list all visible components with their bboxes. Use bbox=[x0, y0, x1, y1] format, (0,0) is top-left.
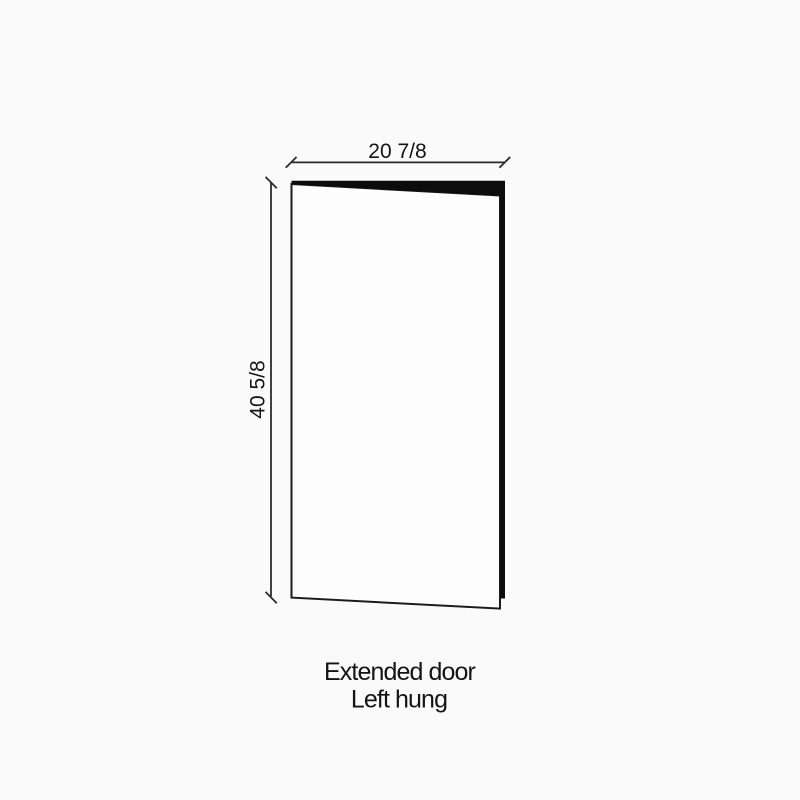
svg-text:Extended door: Extended door bbox=[324, 658, 475, 686]
svg-text:20 7/8: 20 7/8 bbox=[368, 140, 426, 163]
svg-text:40 5/8: 40 5/8 bbox=[247, 360, 270, 418]
svg-text:Left hung: Left hung bbox=[351, 686, 447, 714]
